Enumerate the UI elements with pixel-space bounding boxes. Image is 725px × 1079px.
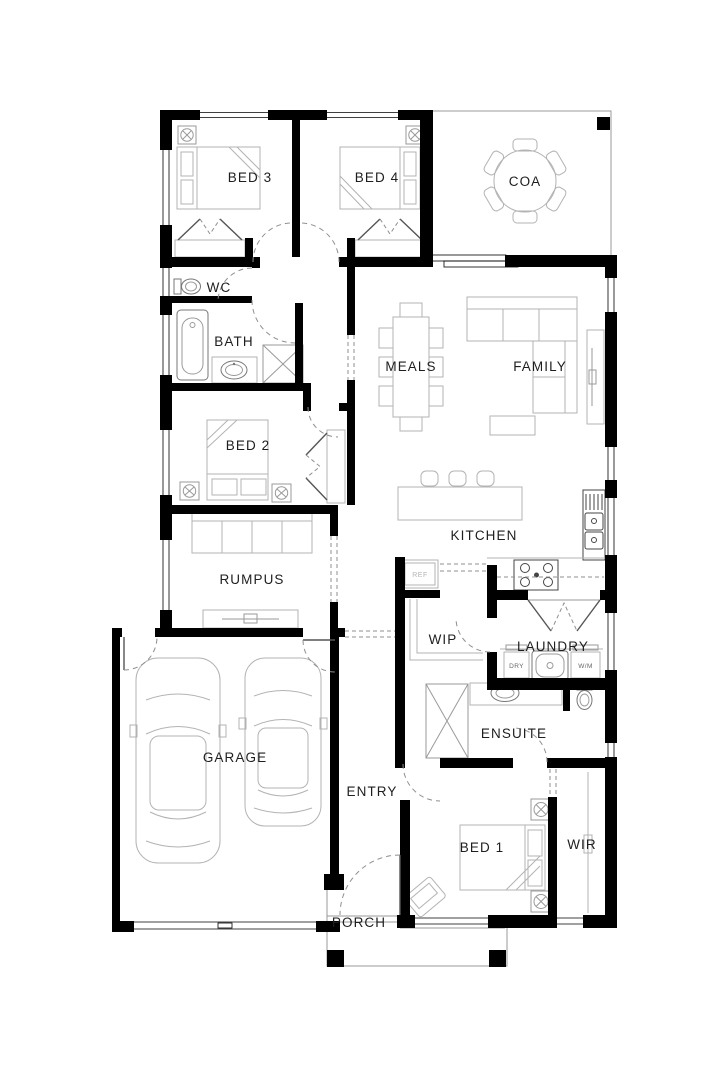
room-label-wip: WIP [429,632,458,647]
room-label-kitchen: KITCHEN [451,528,518,543]
room-label-porch: PORCH [332,915,386,930]
fridge-label: REF [412,572,428,579]
room-label-wc: WC [207,280,232,295]
window [608,278,614,312]
bed2-fan-icon-left [180,482,199,500]
window [557,918,583,924]
window [163,315,169,375]
window [200,113,268,118]
rumpus-tv-unit [203,610,298,628]
kitchen-island [398,471,522,520]
window [163,268,169,296]
kitchen-cooktop [514,560,558,590]
washer-label: W/M [578,663,593,670]
walls-layer [112,110,617,967]
window [415,918,488,924]
laundry-tub [532,651,568,680]
bed2-door-swing [308,407,338,437]
window [163,430,169,495]
coa-post [597,117,610,130]
bed1-bed [460,825,545,890]
room-label-ensuite: ENSUITE [481,726,547,741]
room-label-meals: MEALS [385,359,436,374]
room-label-bath: BATH [214,334,253,349]
bed3-robe [175,219,245,257]
front-door [340,855,400,915]
ensuite-shower [426,684,468,758]
garage-car-right [239,658,327,826]
bed1-armchair [404,876,447,918]
garage-door [134,922,316,929]
family-tv-unit [587,330,604,424]
room-label-garage: GARAGE [203,750,267,765]
window [608,613,614,670]
porch-post-right [489,950,506,967]
bath-door-swing [252,300,295,343]
dryer-label: DRY [509,663,524,670]
wip-shelves [410,599,483,660]
room-label-family: FAMILY [513,359,567,374]
window [163,150,169,225]
room-label-rumpus: RUMPUS [219,572,284,587]
window [327,113,398,118]
room-label-bed1: BED 1 [460,840,505,855]
room-label-coa: COA [509,174,542,189]
window [608,743,614,757]
laundry-linen-doors [528,600,600,631]
bath-vanity [212,357,257,383]
room-label-bed4: BED 4 [355,170,400,185]
bed3-door-swing [253,223,292,262]
furniture-layer [130,126,605,918]
wip-door-swing [456,618,490,652]
window [163,540,169,610]
porch-post-left [327,950,344,967]
bed4-robe [355,219,425,257]
bed4-door-swing [300,223,339,262]
garage-side-door [124,637,157,670]
room-label-laundry: LAUNDRY [517,639,589,654]
room-label-wir: WIR [567,837,597,852]
window [608,447,614,480]
floor-plan-drawing: BED 3 BED 4 COA WC BATH MEALS FAMILY BED… [0,0,725,1079]
bed2-fan-icon-right [272,484,291,502]
bathtub [177,310,208,380]
rumpus-sofa [192,513,312,553]
bed1-hall-door-swing [403,764,440,801]
room-label-entry: ENTRY [346,784,397,799]
window [608,498,614,555]
bed2-bed [207,420,268,500]
kitchen-sink [583,490,605,560]
floor-plan: BED 3 BED 4 COA WC BATH MEALS FAMILY BED… [0,0,725,1079]
bed3-fan-icon [178,126,196,144]
wc-toilet [174,279,201,294]
bed2-robe [306,430,345,503]
room-label-bed2: BED 2 [226,438,271,453]
room-label-bed3: BED 3 [228,170,273,185]
